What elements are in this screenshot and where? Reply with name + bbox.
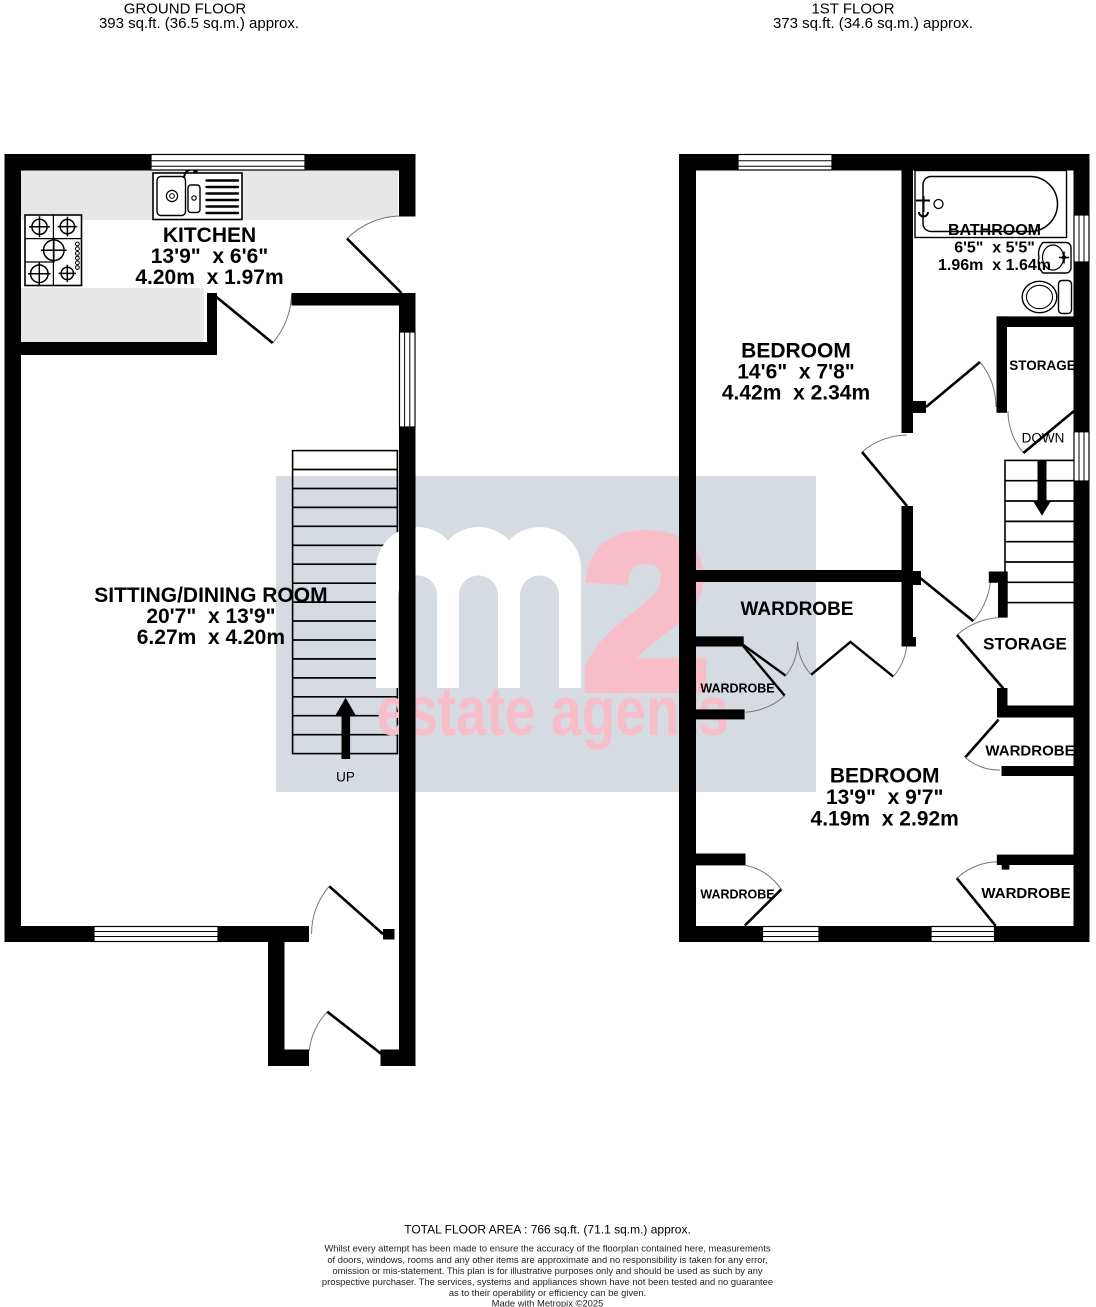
svg-text:WARDROBE: WARDROBE bbox=[700, 887, 774, 901]
svg-text:KITCHEN: KITCHEN bbox=[163, 224, 256, 247]
svg-text:SITTING/DINING ROOM: SITTING/DINING ROOM bbox=[94, 584, 327, 607]
svg-text:6.27m x 4.20m: 6.27m x 4.20m bbox=[137, 626, 285, 649]
svg-text:prospective purchaser. The ser: prospective purchaser. The services, sys… bbox=[322, 1276, 773, 1287]
svg-text:20'7" x 13'9": 20'7" x 13'9" bbox=[146, 605, 275, 628]
svg-text:TOTAL FLOOR AREA : 766 sq.ft.: TOTAL FLOOR AREA : 766 sq.ft. (71.1 sq.m… bbox=[404, 1223, 691, 1237]
svg-text:as to their operability or eff: as to their operability or efficiency ca… bbox=[449, 1287, 646, 1298]
svg-text:WARDROBE: WARDROBE bbox=[981, 885, 1070, 902]
svg-text:373 sq.ft. (34.6 sq.m.) approx: 373 sq.ft. (34.6 sq.m.) approx. bbox=[773, 15, 973, 32]
svg-text:13'9" x 6'6": 13'9" x 6'6" bbox=[151, 245, 268, 268]
svg-text:WARDROBE: WARDROBE bbox=[741, 599, 854, 620]
svg-text:BEDROOM: BEDROOM bbox=[830, 765, 940, 788]
svg-text:BEDROOM: BEDROOM bbox=[741, 339, 851, 362]
svg-text:estate agents: estate agents bbox=[377, 672, 729, 750]
svg-text:13'9" x 9'7": 13'9" x 9'7" bbox=[826, 786, 943, 809]
svg-text:omission or mis-statement. Thi: omission or mis-statement. This plan is … bbox=[332, 1265, 763, 1276]
svg-text:WARDROBE: WARDROBE bbox=[985, 742, 1074, 759]
svg-text:1.96m x 1.64m: 1.96m x 1.64m bbox=[938, 257, 1051, 274]
svg-text:4.42m x 2.34m: 4.42m x 2.34m bbox=[722, 381, 870, 404]
svg-text:BATHROOM: BATHROOM bbox=[948, 222, 1041, 239]
svg-text:STORAGE: STORAGE bbox=[1009, 358, 1076, 373]
svg-text:4.20m x 1.97m: 4.20m x 1.97m bbox=[135, 266, 283, 289]
svg-text:STORAGE: STORAGE bbox=[983, 635, 1067, 654]
svg-text:WARDROBE: WARDROBE bbox=[700, 681, 774, 695]
svg-text:6'5" x 5'5": 6'5" x 5'5" bbox=[954, 240, 1035, 257]
svg-text:of doors, windows, rooms and a: of doors, windows, rooms and any other i… bbox=[327, 1254, 767, 1265]
svg-text:DOWN: DOWN bbox=[1022, 431, 1065, 446]
svg-text:14'6" x 7'8": 14'6" x 7'8" bbox=[737, 360, 854, 383]
svg-text:Made with Metropix ©2025: Made with Metropix ©2025 bbox=[492, 1298, 604, 1307]
svg-text:4.19m x 2.92m: 4.19m x 2.92m bbox=[811, 808, 959, 831]
svg-text:393 sq.ft. (36.5 sq.m.) approx: 393 sq.ft. (36.5 sq.m.) approx. bbox=[99, 15, 299, 32]
svg-text:UP: UP bbox=[336, 770, 355, 785]
svg-text:Whilst every attempt has been: Whilst every attempt has been made to en… bbox=[324, 1242, 770, 1253]
